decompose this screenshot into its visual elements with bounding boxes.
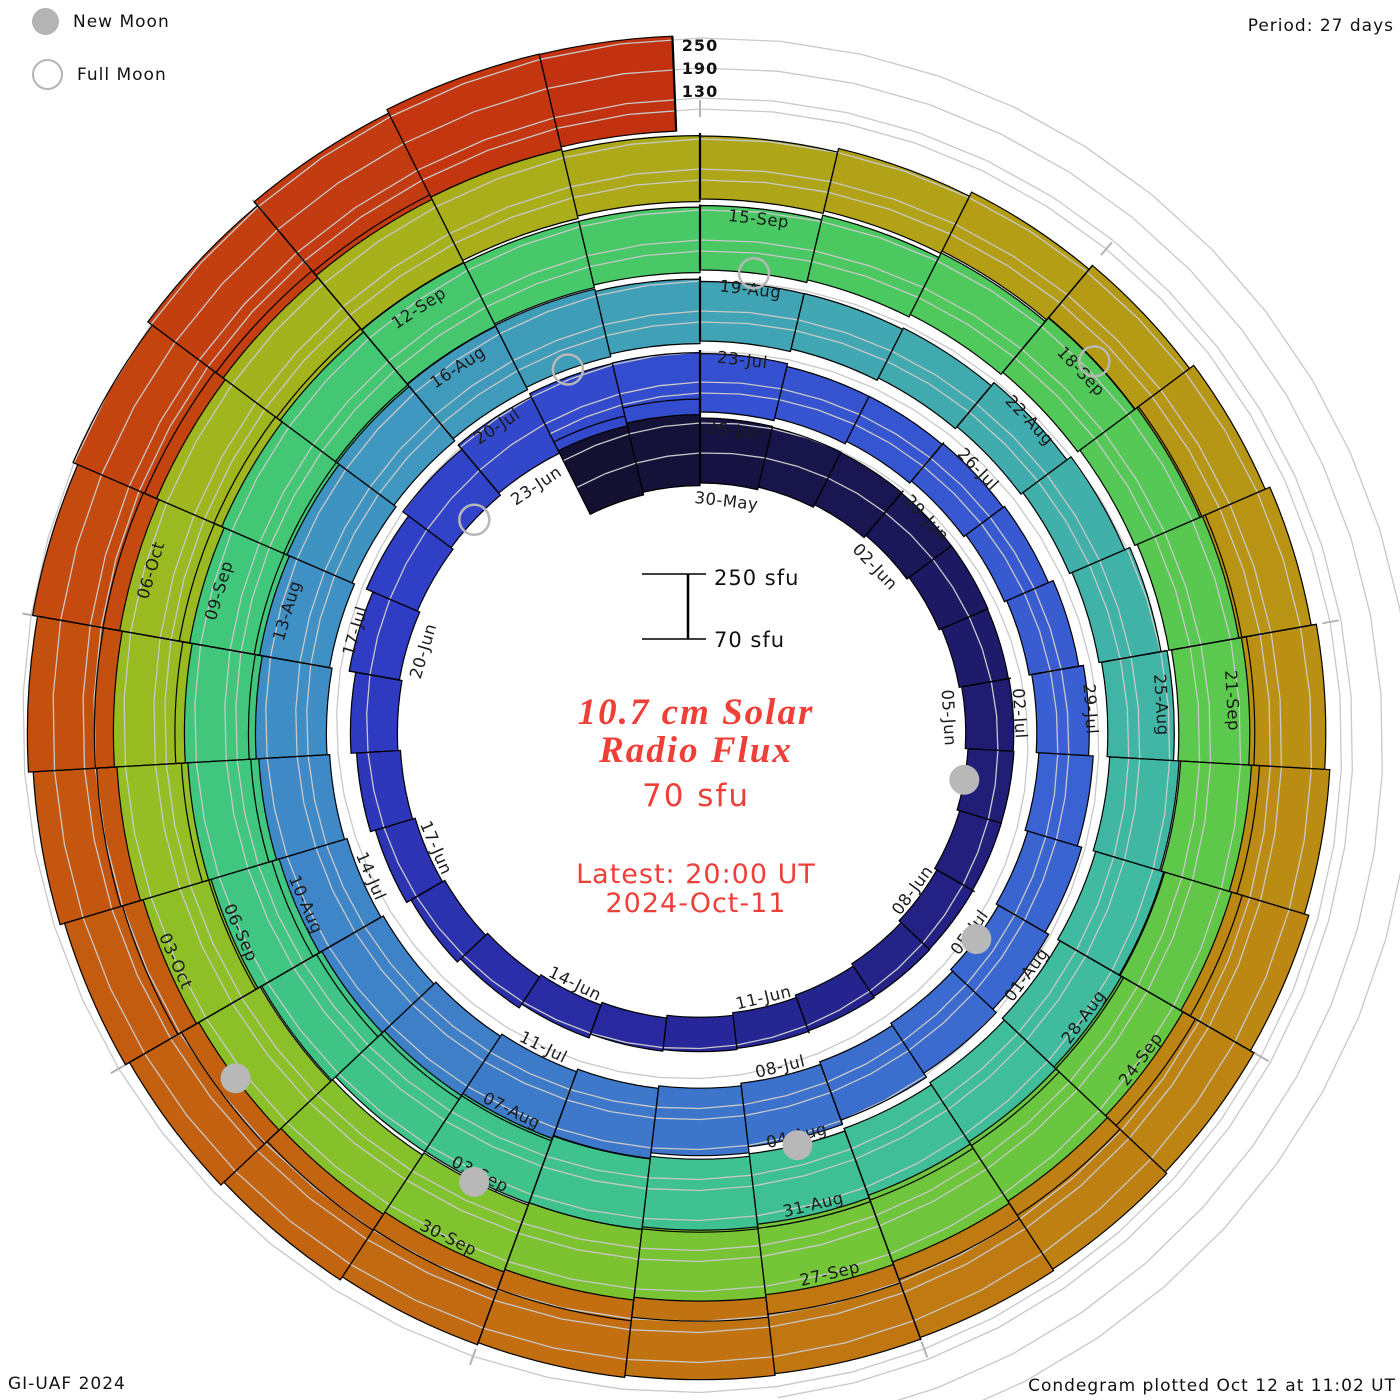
new-moon-marker-2024-08-04 (782, 1130, 812, 1160)
condegram-page: 30-May02-Jun05-Jun08-Jun11-Jun14-Jun17-J… (0, 0, 1400, 1400)
radial-axis-250: 250 (640, 34, 760, 57)
scalebar-min-label: 70 sfu (714, 628, 785, 652)
new-moon-marker-2024-07-05 (961, 924, 991, 954)
chart-title-line2: Radio Flux (396, 732, 996, 770)
scalebar-max-label: 250 sfu (714, 566, 799, 590)
chart-title-line1: 10.7 cm Solar (396, 694, 996, 732)
new-moon-icon (32, 8, 59, 35)
new-moon-marker-2024-10-02 (221, 1063, 251, 1093)
date-label-29-Jul: 29-Jul (1080, 683, 1102, 735)
chart-title: 10.7 cm Solar Radio Flux (396, 694, 996, 770)
date-label-30-May: 30-May (694, 488, 760, 514)
new-moon-marker-2024-09-03 (459, 1167, 489, 1197)
radial-axis-130: 130 (640, 80, 760, 103)
latest-timestamp: Latest: 20:00 UT 2024-Oct-11 (396, 860, 996, 918)
date-label-21-Sep: 21-Sep (1221, 669, 1244, 731)
date-label-25-Aug: 25-Aug (1150, 673, 1173, 736)
flux-scalebar (642, 574, 706, 639)
legend-new-moon-label: New Moon (73, 12, 170, 32)
period-label: Period: 27 days (1248, 16, 1394, 36)
legend-full-moon-label: Full Moon (77, 65, 167, 85)
radial-axis-labels: 250 190 130 (640, 34, 760, 103)
date-label-02-Jul: 02-Jul (1009, 688, 1031, 740)
plotted-timestamp: Condegram plotted Oct 12 at 11:02 UT (1028, 1376, 1396, 1396)
credit-label: GI-UAF 2024 (8, 1374, 126, 1394)
radial-axis-190: 190 (640, 57, 760, 80)
legend-full-moon: Full Moon (32, 59, 170, 90)
latest-flux-value: 70 sfu (396, 778, 996, 814)
latest-date-line: 2024-Oct-11 (396, 889, 996, 918)
latest-time-line: Latest: 20:00 UT (396, 860, 996, 889)
full-moon-icon (32, 59, 63, 90)
legend-new-moon: New Moon (32, 8, 170, 35)
moon-legend: New Moon Full Moon (32, 8, 170, 114)
